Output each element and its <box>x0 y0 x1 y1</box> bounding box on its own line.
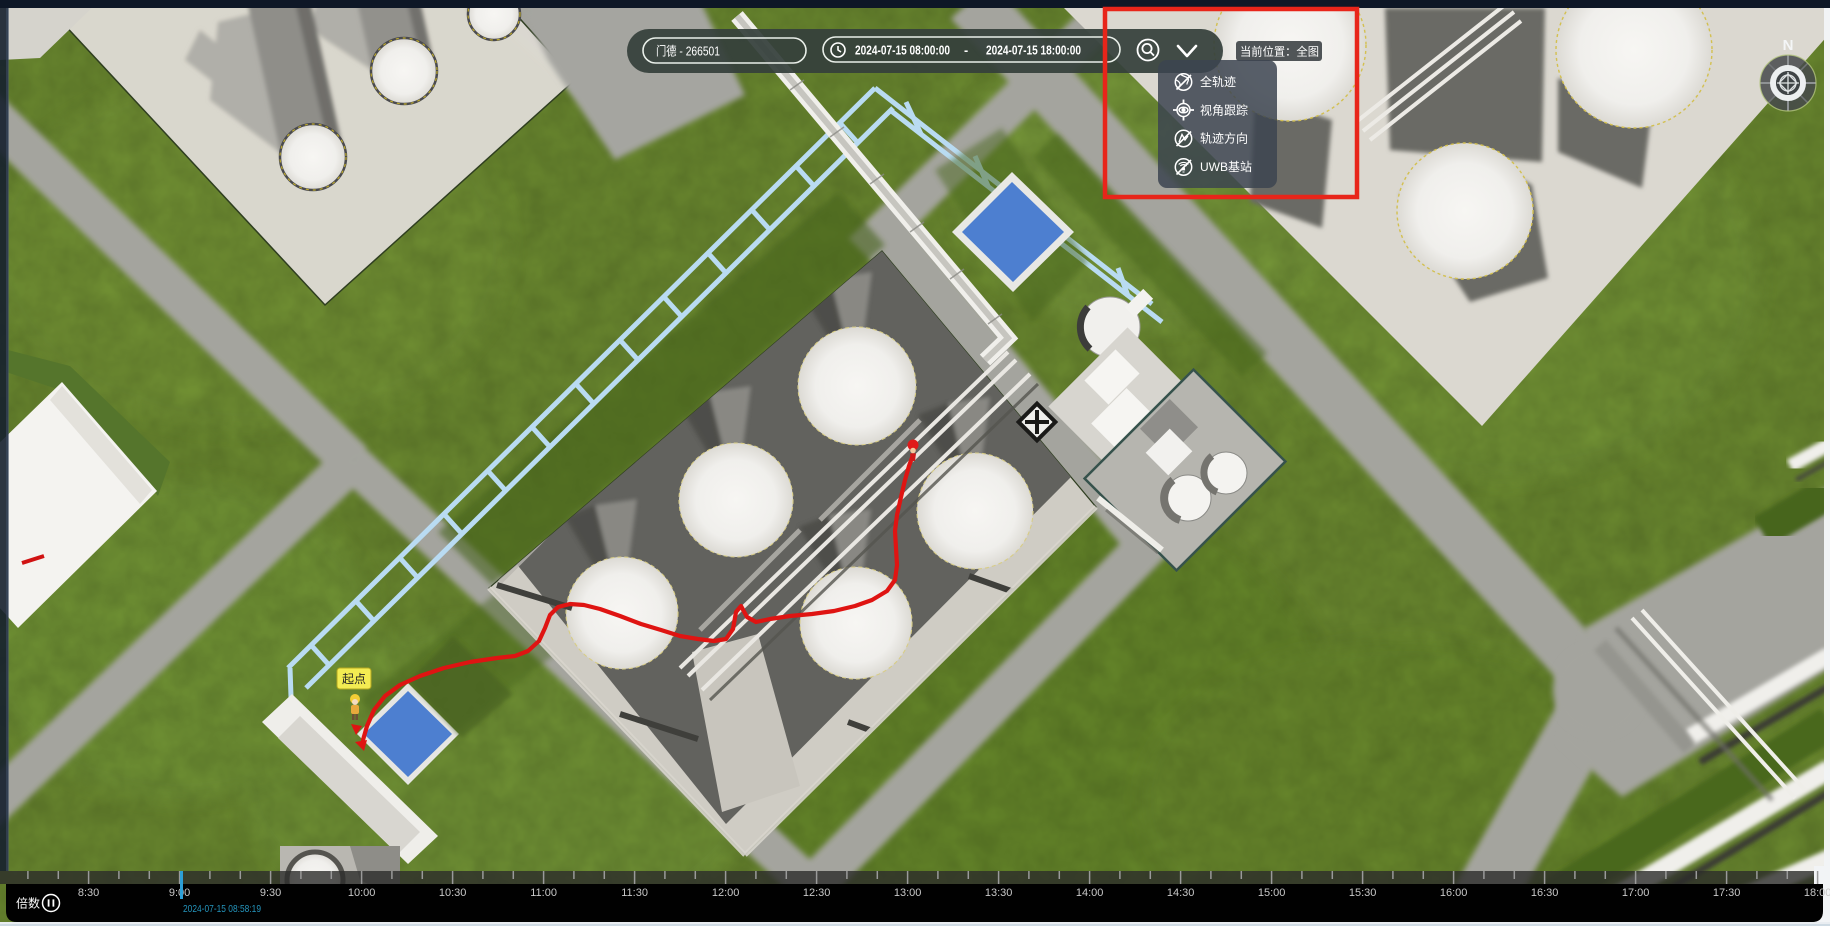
svg-text:11:30: 11:30 <box>621 887 648 899</box>
svg-text:16:00: 16:00 <box>1440 887 1468 899</box>
svg-text:18:00: 18:00 <box>1804 887 1830 899</box>
svg-text:10:00: 10:00 <box>348 887 376 899</box>
svg-text:11:00: 11:00 <box>530 887 557 899</box>
svg-text:N: N <box>1783 37 1794 54</box>
svg-text:15:00: 15:00 <box>1258 887 1286 899</box>
svg-text:10:30: 10:30 <box>439 887 467 899</box>
svg-text:13:00: 13:00 <box>894 887 922 899</box>
svg-text:14:30: 14:30 <box>1167 887 1195 899</box>
svg-text:16:30: 16:30 <box>1531 887 1559 899</box>
svg-text:12:00: 12:00 <box>712 887 740 899</box>
svg-text:视角跟踪: 视角跟踪 <box>1200 103 1248 118</box>
svg-text:UWB基站: UWB基站 <box>1200 160 1252 174</box>
svg-text:14:00: 14:00 <box>1076 887 1104 899</box>
svg-text:15:30: 15:30 <box>1349 887 1377 899</box>
svg-text:门德 - 266501: 门德 - 266501 <box>656 44 720 59</box>
svg-text:倍数: 倍数 <box>16 896 40 911</box>
svg-text:轨迹方向: 轨迹方向 <box>1200 131 1248 146</box>
svg-text:全轨迹: 全轨迹 <box>1200 74 1236 89</box>
svg-text:2024-07-15 08:00:00: 2024-07-15 08:00:00 <box>855 44 950 58</box>
svg-text:-: - <box>964 44 968 58</box>
svg-text:9:00: 9:00 <box>169 887 190 899</box>
svg-text:9:30: 9:30 <box>260 887 281 899</box>
svg-text:2024-07-15 18:00:00: 2024-07-15 18:00:00 <box>986 44 1081 58</box>
svg-text:17:00: 17:00 <box>1622 887 1650 899</box>
svg-text:当前位置：全图: 当前位置：全图 <box>1240 45 1319 59</box>
svg-text:2024-07-15 08:58:19: 2024-07-15 08:58:19 <box>183 903 261 915</box>
svg-text:17:30: 17:30 <box>1713 887 1741 899</box>
svg-text:12:30: 12:30 <box>803 887 831 899</box>
svg-text:13:30: 13:30 <box>985 887 1013 899</box>
svg-text:8:30: 8:30 <box>78 887 99 899</box>
